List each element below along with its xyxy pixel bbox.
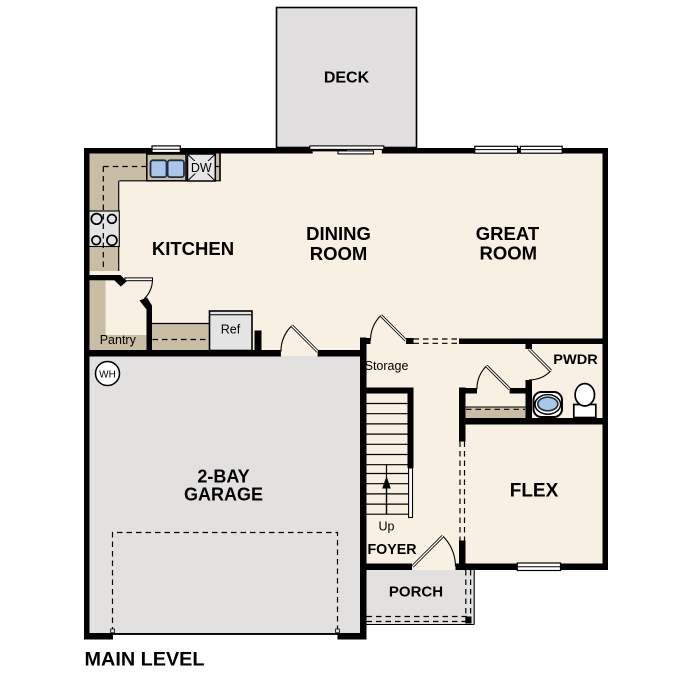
svg-text:Storage: Storage [365,359,409,373]
svg-text:DINING: DINING [306,223,371,244]
svg-text:PWDR: PWDR [553,351,598,367]
svg-text:GREAT: GREAT [476,223,540,244]
svg-text:FLEX: FLEX [510,481,559,502]
svg-text:KITCHEN: KITCHEN [152,238,234,259]
svg-text:DW: DW [191,161,212,175]
svg-text:DECK: DECK [324,70,370,87]
svg-text:WH: WH [99,369,116,380]
svg-text:ROOM: ROOM [480,243,538,264]
svg-text:Ref: Ref [221,323,241,337]
svg-text:FOYER: FOYER [368,541,417,558]
svg-text:Pantry: Pantry [100,333,137,347]
svg-text:GARAGE: GARAGE [184,485,263,505]
svg-text:2-BAY: 2-BAY [197,467,249,487]
svg-text:ROOM: ROOM [310,243,368,264]
svg-text:MAIN LEVEL: MAIN LEVEL [85,650,205,671]
svg-text:Up: Up [379,520,395,534]
svg-text:PORCH: PORCH [389,584,443,601]
